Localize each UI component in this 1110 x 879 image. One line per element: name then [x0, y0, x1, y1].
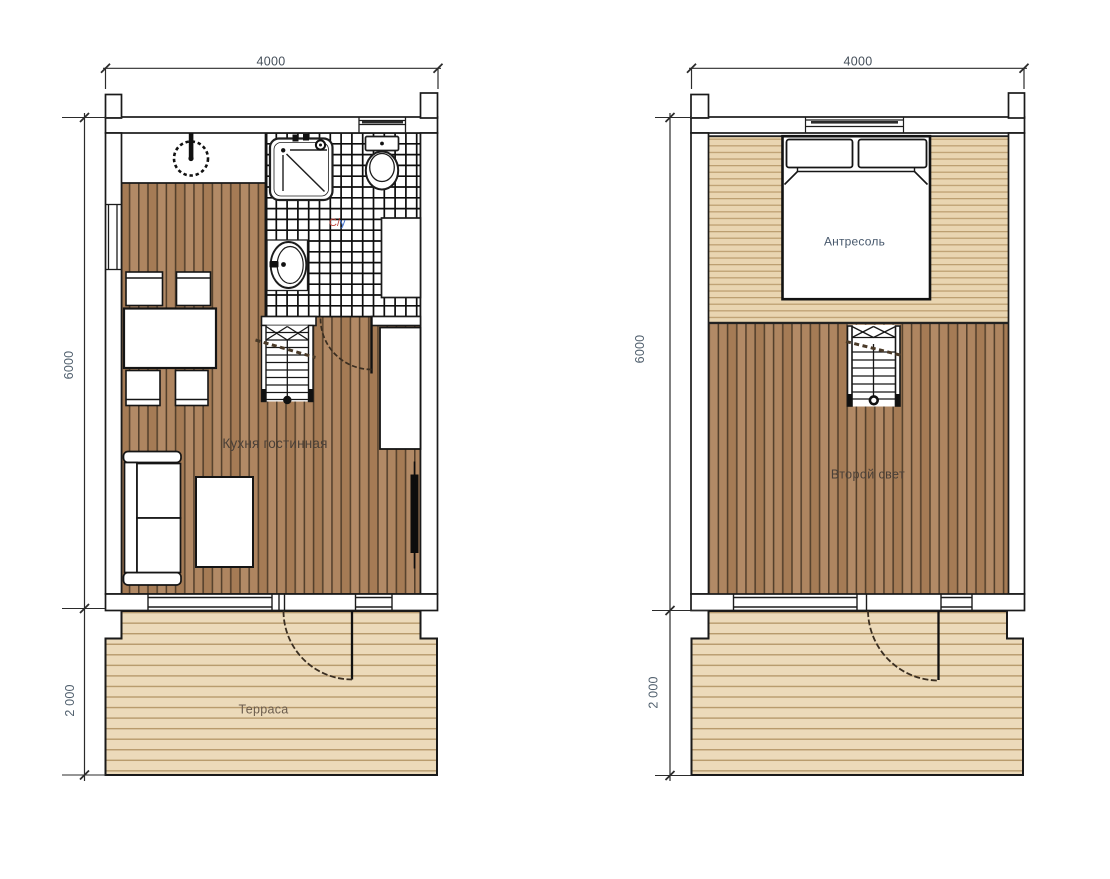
svg-text:Антресоль: Антресоль — [824, 235, 885, 249]
svg-text:6000: 6000 — [633, 335, 647, 364]
svg-text:С/у: С/у — [329, 217, 346, 229]
svg-text:Второй свет: Второй свет — [831, 468, 905, 482]
svg-text:6000: 6000 — [62, 351, 76, 380]
svg-text:2 000: 2 000 — [63, 684, 77, 716]
svg-text:Терраса: Терраса — [238, 703, 288, 717]
svg-text:4000: 4000 — [256, 55, 285, 69]
svg-text:4000: 4000 — [843, 55, 872, 69]
svg-text:2 000: 2 000 — [647, 676, 661, 708]
svg-text:Кухня гостинная: Кухня гостинная — [222, 436, 327, 451]
